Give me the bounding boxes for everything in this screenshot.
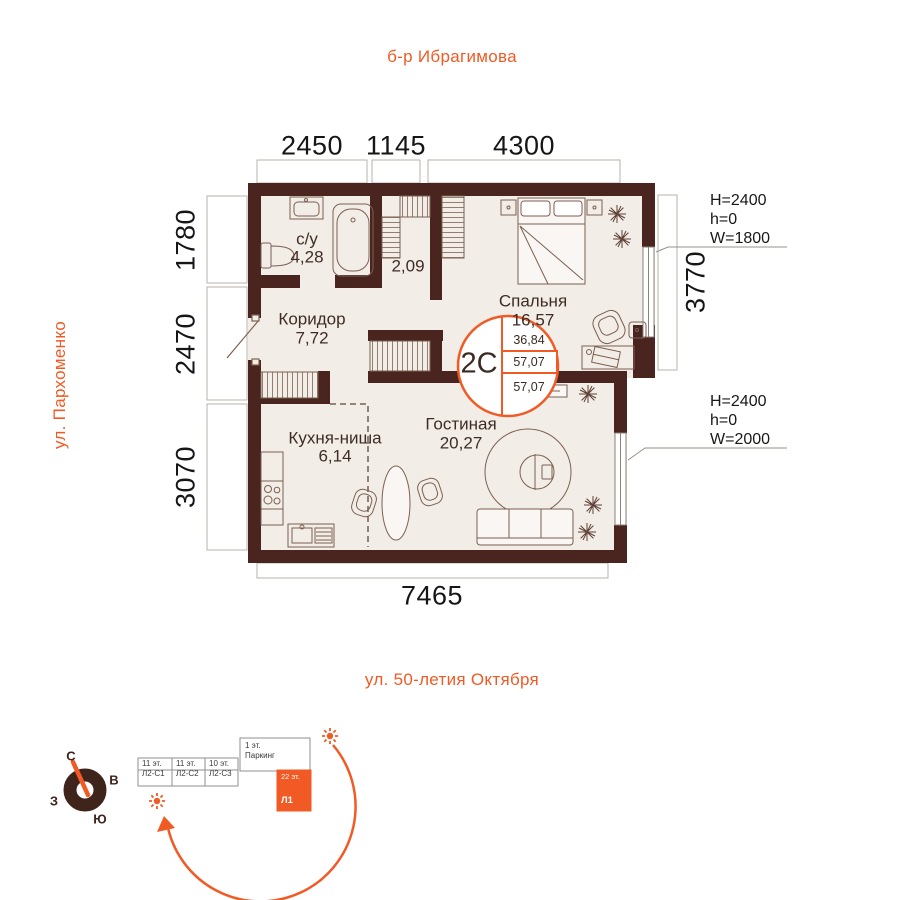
window-note-line: H=2400 (710, 392, 770, 411)
window-bedroom (643, 247, 654, 337)
site-block-1-name: Л2-С1 (142, 769, 165, 779)
window-living (615, 433, 626, 525)
window-note-line: h=0 (710, 210, 770, 229)
sun-icon (322, 728, 338, 744)
plant-icon (608, 205, 626, 223)
compass-south-label: Ю (93, 812, 106, 827)
dim-top-3: 4300 (493, 131, 555, 162)
room-area-hall: 7,72 (295, 329, 328, 348)
dim-right: 3770 (681, 251, 712, 313)
plant-icon (613, 230, 631, 248)
room-label-bath: с/у (296, 230, 318, 249)
window-note-line: W=1800 (710, 229, 770, 248)
badge-area-total: 57,07 (513, 355, 544, 369)
window-note-living: H=2400 h=0 W=2000 (710, 392, 770, 449)
street-label-top: б-р Ибрагимова (387, 47, 517, 67)
dim-left-3: 3070 (171, 446, 202, 508)
site-tower-floors: 22 эт. (281, 772, 300, 782)
room-area-kitchen: 6,14 (318, 447, 351, 466)
site-block-1-floors: 11 эт. (142, 759, 165, 769)
site-block-2: 11 эт. Л2-С2 (176, 759, 199, 779)
room-area-bath: 4,28 (290, 248, 323, 267)
badge-area-full: 57,07 (513, 380, 544, 394)
floorplan-page: б-р Ибрагимова ул. Пархоменко ул. 50-лет… (0, 0, 900, 900)
room-label-kitchen: Кухня-ниша (288, 429, 381, 448)
dim-left-2: 2470 (171, 313, 202, 375)
site-block-3-floors: 10 эт. (209, 759, 232, 769)
window-note-line: H=2400 (710, 191, 770, 210)
room-area-living: 20,27 (440, 434, 483, 453)
site-block-3-name: Л2-С3 (209, 769, 232, 779)
site-block-2-floors: 11 эт. (176, 759, 199, 769)
sofa-icon (477, 509, 573, 545)
site-tower-name: Л1 (281, 796, 293, 806)
window-note-bedroom: H=2400 h=0 W=1800 (710, 191, 770, 248)
room-label-bedroom: Спальня (499, 292, 567, 311)
dim-bottom: 7465 (401, 581, 463, 612)
site-parking-floors: 1 эт. (245, 741, 275, 751)
badge-plan-type: 2С (460, 348, 497, 381)
site-block-parking: 1 эт. Паркинг (245, 741, 275, 761)
dim-left-1: 1780 (171, 209, 202, 271)
site-block-3: 10 эт. Л2-С3 (209, 759, 232, 779)
sun-icon (149, 793, 165, 809)
plant-icon (584, 496, 602, 514)
plant-icon (579, 385, 597, 403)
compass-west-label: З (50, 794, 58, 809)
street-label-left: ул. Пархоменко (50, 321, 70, 449)
room-label-hall: Коридор (278, 310, 345, 329)
badge-area-living: 36,84 (513, 333, 544, 347)
site-block-1: 11 эт. Л2-С1 (142, 759, 165, 779)
window-note-line: h=0 (710, 411, 770, 430)
window-note-line: W=2000 (710, 430, 770, 449)
room-label-living: Гостиная (425, 415, 496, 434)
site-block-2-name: Л2-С2 (176, 769, 199, 779)
room-area-closet: 2,09 (391, 257, 424, 276)
compass-icon (70, 762, 100, 805)
compass-east-label: В (109, 773, 118, 788)
site-parking-name: Паркинг (245, 751, 275, 761)
dim-top-2: 1145 (366, 131, 426, 162)
dim-top-1: 2450 (281, 131, 343, 162)
compass-north-label: С (66, 749, 75, 764)
street-label-bottom: ул. 50-летия Октября (365, 670, 539, 690)
dining-table-icon (382, 466, 410, 540)
plant-icon (578, 523, 596, 541)
bed-icon (518, 198, 585, 284)
room-area-bedroom: 16,57 (512, 311, 555, 330)
